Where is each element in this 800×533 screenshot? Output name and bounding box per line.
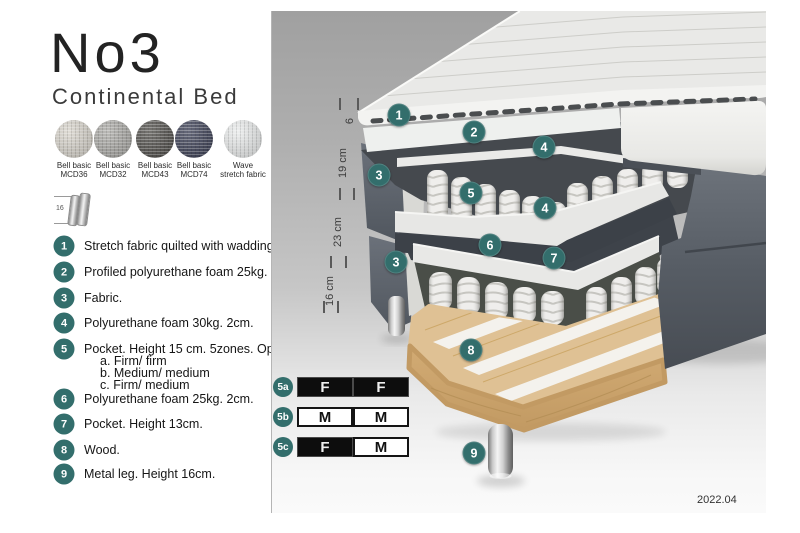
firmness-option-badge: 5a [273,377,293,397]
fabric-swatch [94,120,132,158]
callout-badge: 2 [463,121,486,144]
spec-item-text: Metal leg. Height 16cm. [84,467,215,481]
callout-badge: 1 [388,104,411,127]
fabric-swatch [55,120,93,158]
ruler-tick [339,98,341,110]
spec-bullet: 9 [54,464,75,485]
spec-bullet: 6 [54,389,75,410]
firmness-option-badge: 5b [273,407,293,427]
ruler-tick [339,188,341,200]
fabric-swatch [136,120,174,158]
leg-height-icon: 16 [52,192,102,232]
dimension-label: 23 cm [332,217,344,247]
callout-badge: 3 [368,164,391,187]
dimension-label: 6 [344,118,356,124]
callout-badge: 6 [479,234,502,257]
spec-item-text: Fabric. [84,291,122,305]
callout-badge: 7 [543,247,566,270]
spec-item-text: Pocket. Height 13cm. [84,417,203,431]
callout-badge: 4 [533,136,556,159]
spec-bullet: 1 [54,236,75,257]
fabric-swatch [175,120,213,158]
firmness-table: F F [297,377,409,397]
spec-bullet: 4 [54,313,75,334]
dimension-label: 19 cm [337,148,349,178]
firmness-cell: M [353,407,409,427]
firmness-table: F M [297,437,409,457]
ruler-tick [330,256,332,268]
firmness-cell: F [297,377,353,397]
firmness-option-badge: 5c [273,437,293,457]
page-title: No3 [50,20,165,85]
firmness-cell: M [353,437,409,457]
spec-item-text: Stretch fabric quilted with wadding. [84,239,277,253]
spec-item-text: Polyurethane foam 30kg. 2cm. [84,316,254,330]
spec-option: c. Firm/ medium [100,378,190,392]
version-stamp: 2022.04 [697,494,737,506]
spec-item-text: Wood. [84,443,120,457]
callout-badge: 3 [385,251,408,274]
spec-bullet: 3 [54,288,75,309]
swatch-label: Bell basicMCD74 [166,161,222,179]
spec-item-text: Polyurethane foam 25kg. 2cm. [84,392,254,406]
ruler-tick [337,301,339,313]
callout-badge: 9 [463,442,486,465]
swatch-label: Wavestretch fabric [215,161,271,179]
ruler-tick [353,188,355,200]
page-subtitle: Continental Bed [52,84,239,110]
callout-badge: 4 [534,197,557,220]
firmness-cell: F [353,377,409,397]
firmness-cell: F [297,437,353,457]
callout-badge: 8 [460,339,483,362]
firmness-table: M M [297,407,409,427]
spec-bullet: 7 [54,414,75,435]
firmness-cell: M [297,407,353,427]
spec-sheet-page: No3 Continental Bed Bell basicMCD36 Bell… [0,0,800,533]
ruler-tick [345,256,347,268]
spec-item-text: Profiled polyurethane foam 25kg. 4cm. [84,265,298,279]
leg-height-value: 16 [56,205,64,212]
spec-bullet: 5 [54,339,75,360]
callout-badge: 5 [460,182,483,205]
ruler-tick [357,98,359,110]
spec-bullet: 2 [54,262,75,283]
dimension-label: 16 cm [324,276,336,306]
spec-bullet: 8 [54,440,75,461]
fabric-swatch [224,120,262,158]
